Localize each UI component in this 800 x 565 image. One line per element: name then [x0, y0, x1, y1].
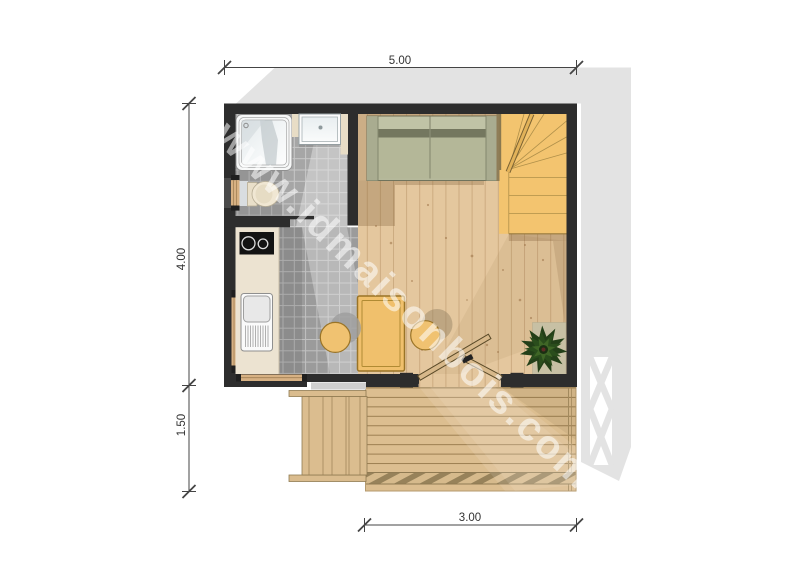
- svg-text:3.00: 3.00: [459, 512, 481, 524]
- svg-text:1.50: 1.50: [176, 414, 188, 436]
- svg-text:4.00: 4.00: [176, 248, 188, 270]
- svg-text:5.00: 5.00: [389, 55, 411, 67]
